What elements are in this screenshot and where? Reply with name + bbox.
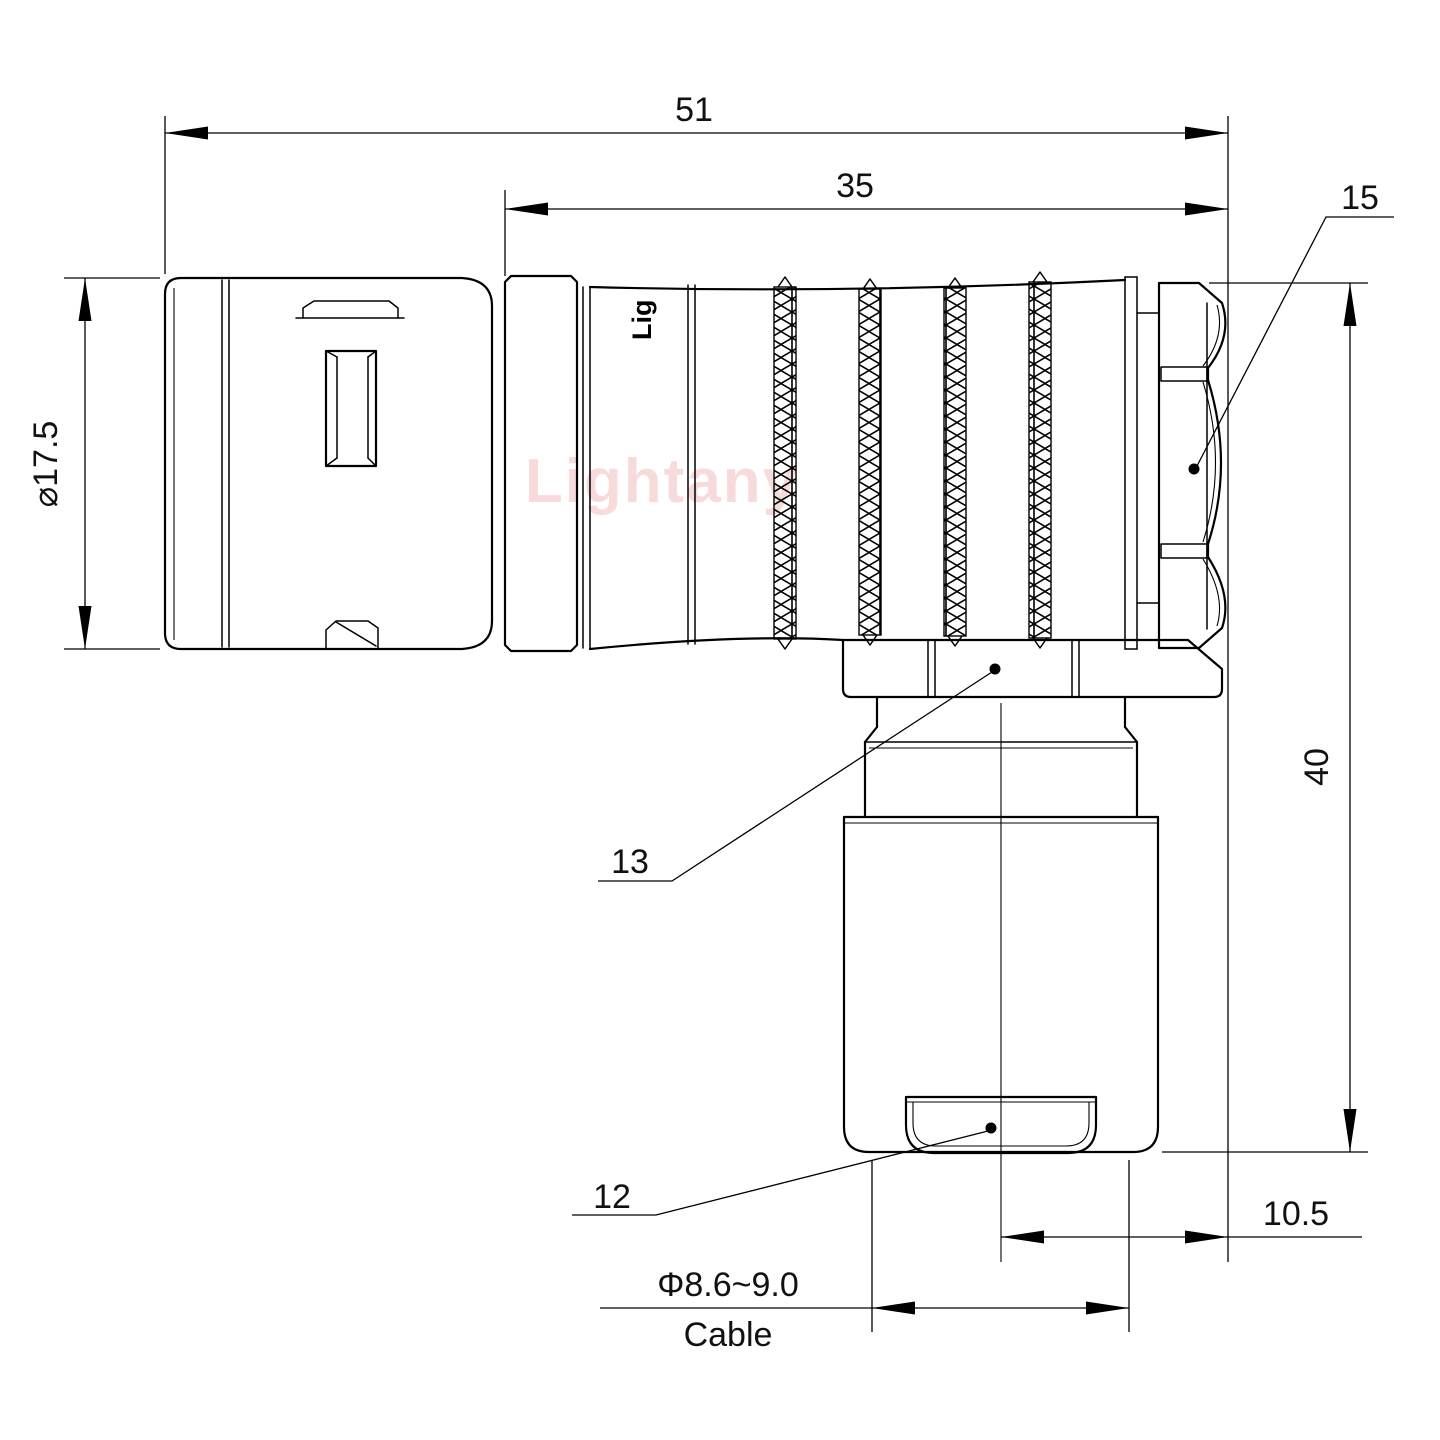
mating-shell [165, 278, 492, 649]
bottom-notch [326, 621, 378, 649]
leader-cable-bushing: 12 [572, 1123, 997, 1217]
dim-front-length: 35 [505, 167, 1228, 276]
label-15-text: 15 [1341, 179, 1379, 217]
latch-window [326, 351, 376, 466]
washer [1125, 277, 1159, 649]
dim-10-5-text: 10.5 [1263, 1195, 1329, 1233]
label-13-text: 13 [611, 843, 649, 881]
connector-dimension-drawing: Lightany [0, 0, 1440, 1440]
dim-cable-diameter-text: Φ8.6~9.0 [657, 1266, 799, 1304]
dim-offset: 10.5 [1001, 1195, 1362, 1244]
watermark-text: Lightany [525, 447, 799, 516]
dim-17-5-text: ⌀17.5 [27, 421, 65, 508]
dim-51-text: 51 [675, 91, 713, 129]
knurl-band [859, 279, 881, 645]
dim-shell-diameter: ⌀17.5 [27, 278, 160, 649]
label-12-text: 12 [593, 1178, 631, 1216]
dim-35-text: 35 [836, 167, 874, 205]
knurl-band [774, 277, 796, 649]
dim-40-text: 40 [1298, 748, 1336, 786]
dim-overall-length: 51 [165, 91, 1228, 1262]
cable-gland [844, 697, 1158, 1262]
dim-height: 40 [1162, 283, 1368, 1152]
knurl-band [1029, 272, 1051, 648]
body-logo-text: Lig [627, 300, 657, 341]
key-tab [296, 301, 404, 318]
knurl-band [944, 278, 966, 646]
dim-cable: Φ8.6~9.0 Cable [600, 1160, 1129, 1354]
technical-drawing-page: Lightany [0, 0, 1440, 1440]
dim-cable-word-text: Cable [684, 1316, 773, 1354]
